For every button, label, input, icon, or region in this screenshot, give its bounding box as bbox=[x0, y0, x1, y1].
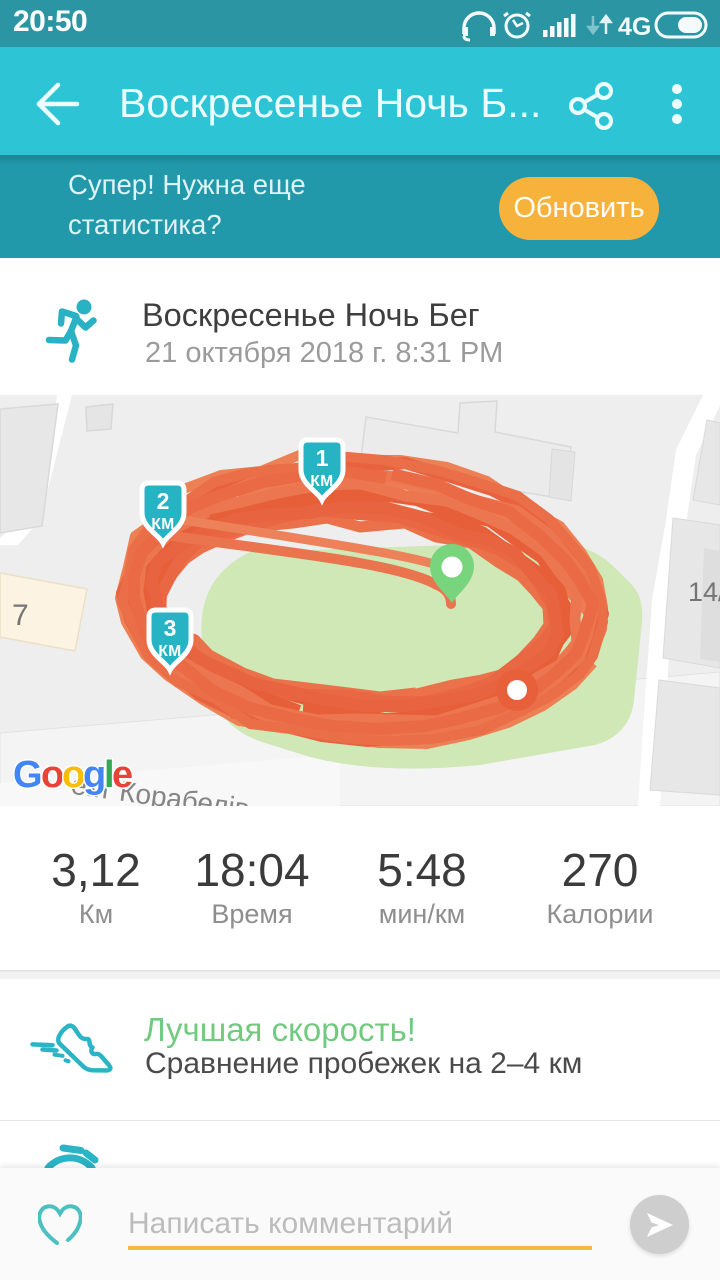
svg-text:КМ: КМ bbox=[310, 473, 333, 490]
svg-text:o: o bbox=[41, 754, 64, 796]
svg-text:e: e bbox=[112, 754, 133, 796]
svg-text:3: 3 bbox=[164, 615, 177, 641]
svg-text:КМ: КМ bbox=[158, 643, 181, 660]
svg-text:4G: 4G bbox=[618, 13, 651, 41]
svg-text:g: g bbox=[83, 754, 106, 796]
svg-text:1: 1 bbox=[316, 445, 329, 471]
svg-text:G: G bbox=[13, 754, 43, 796]
svg-text:2: 2 bbox=[157, 488, 170, 514]
svg-text:7: 7 bbox=[12, 599, 29, 632]
svg-text:14/: 14/ bbox=[688, 577, 720, 607]
svg-text:КМ: КМ bbox=[151, 516, 174, 533]
svg-text:o: o bbox=[62, 754, 85, 796]
